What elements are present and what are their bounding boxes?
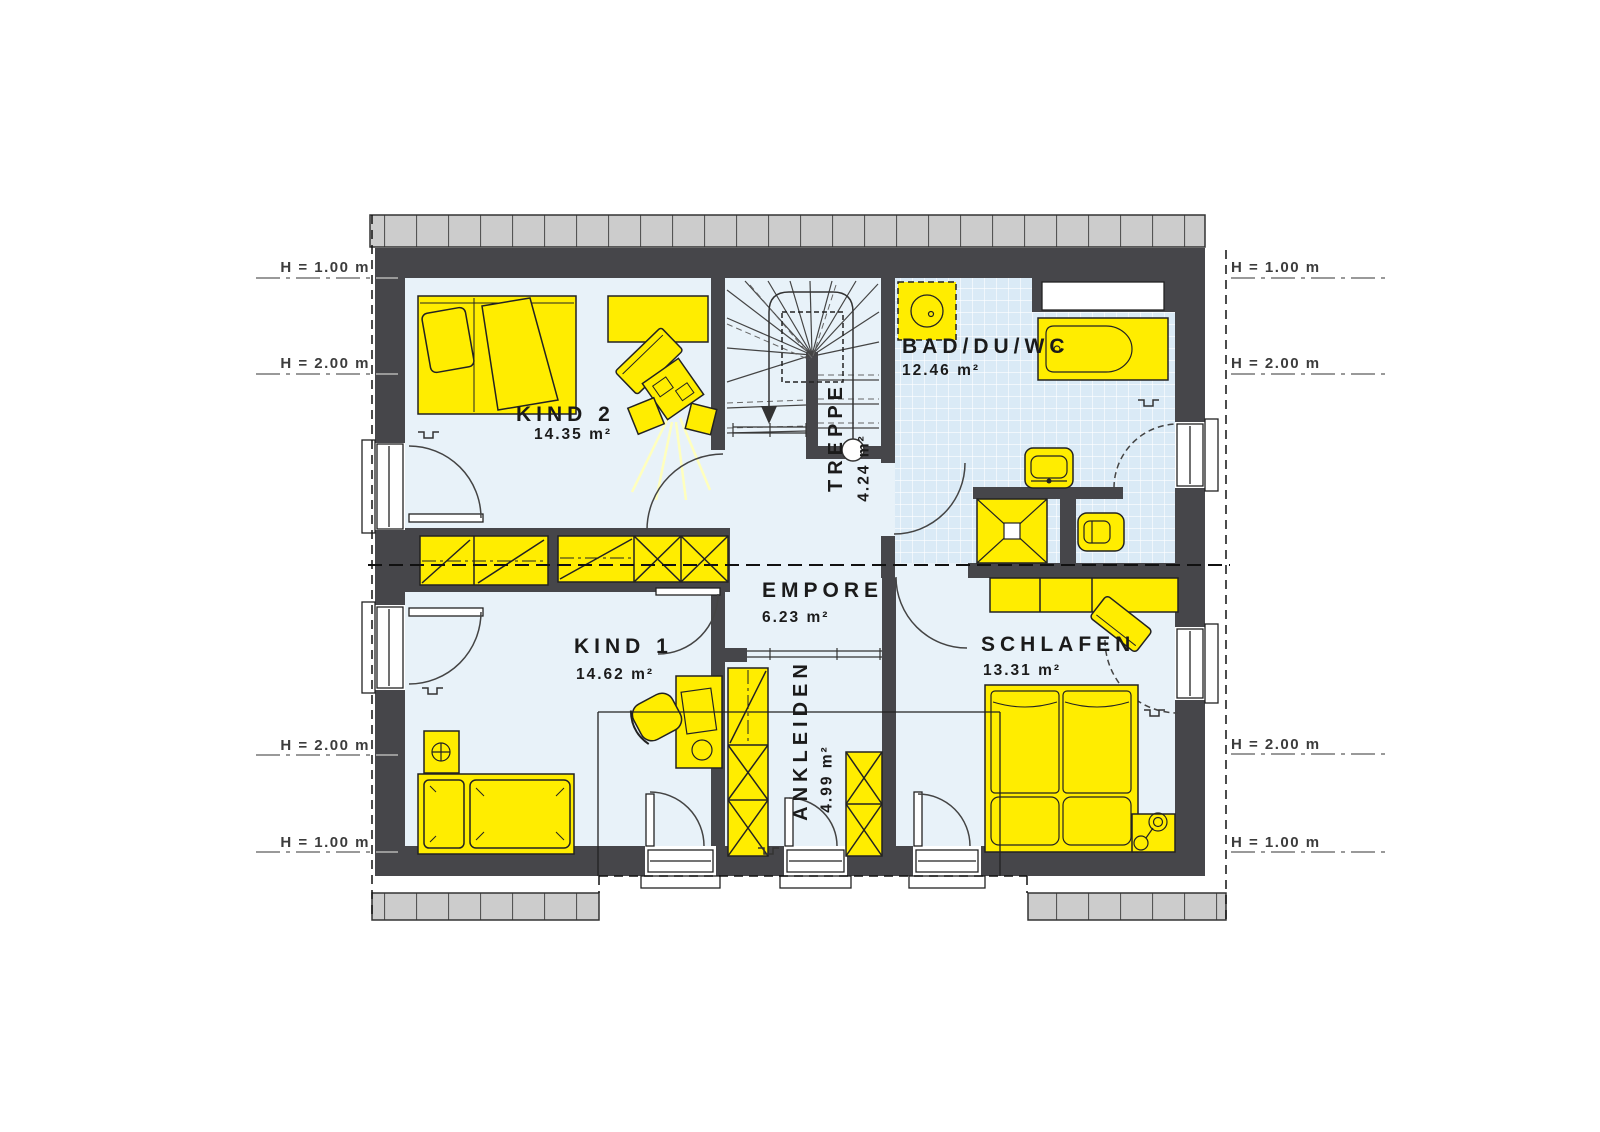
height-label-right-3: H = 2.00 m	[1231, 736, 1321, 753]
kind1-window-sill	[362, 602, 375, 693]
door-sill	[780, 876, 851, 888]
room-label-treppe: TREPPE	[826, 382, 846, 492]
kind2-closet	[420, 536, 548, 585]
room-area-treppe: 4.24 m²	[856, 434, 872, 501]
bad-top-window	[1042, 282, 1164, 310]
height-label-left-3: H = 2.00 m	[280, 737, 370, 754]
room-area-schlafen: 13.31 m²	[983, 663, 1061, 679]
schlafen-window-sill	[1205, 624, 1218, 703]
kind2-bed	[418, 296, 576, 414]
kind2-window	[377, 444, 403, 529]
kind1-window	[377, 607, 403, 688]
stair-newel-wall	[806, 352, 818, 448]
shower-partition	[1060, 499, 1076, 565]
room-area-kind1: 14.62 m²	[576, 667, 654, 683]
height-label-right-2: H = 2.00 m	[1231, 355, 1321, 372]
schlafen-corner-lamp	[1132, 813, 1175, 852]
toilet	[1078, 513, 1124, 551]
floor-plan-drawing	[0, 0, 1600, 1132]
room-label-ankleiden: ANKLEIDEN	[791, 659, 811, 821]
kind1-closet	[558, 536, 728, 582]
kind1-bed	[418, 774, 574, 854]
kind2-window-sill	[362, 440, 375, 533]
room-area-ankleiden: 4.99 m²	[819, 745, 835, 812]
room-label-bad: BAD/DU/WC	[902, 336, 1069, 357]
room-area-empore: 6.23 m²	[762, 610, 829, 626]
room-label-kind1: KIND 1	[574, 636, 673, 657]
kind1-nightstand	[424, 731, 459, 773]
room-label-schlafen: SCHLAFEN	[981, 634, 1135, 655]
schlafen-sideboard	[990, 578, 1178, 612]
room-label-empore: EMPORE	[762, 580, 883, 601]
room-area-bad: 12.46 m²	[902, 363, 980, 379]
room-label-kind2: KIND 2	[516, 404, 615, 425]
ankleiden-north-stub	[725, 648, 747, 662]
kind1-desk	[676, 676, 722, 768]
sink	[1025, 448, 1073, 488]
schlafen-double-bed	[985, 685, 1138, 852]
door-sill	[909, 876, 985, 888]
vanity-counter	[973, 487, 1123, 499]
floor-plan: KIND 2 14.35 m² KIND 1 14.62 m² EMPORE 6…	[0, 0, 1600, 1132]
ankleiden-closet-left	[728, 668, 768, 856]
washing-machine	[898, 282, 956, 340]
shower	[977, 499, 1047, 563]
height-label-left-1: H = 1.00 m	[280, 259, 370, 276]
bathroom-west-wall	[881, 278, 895, 463]
door-sill	[641, 876, 720, 888]
height-label-right-4: H = 1.00 m	[1231, 834, 1321, 851]
height-label-left-2: H = 2.00 m	[280, 355, 370, 372]
room-area-kind2: 14.35 m²	[534, 427, 612, 443]
ankleiden-closet-right	[846, 752, 882, 856]
height-label-left-4: H = 1.00 m	[280, 834, 370, 851]
height-label-right-1: H = 1.00 m	[1231, 259, 1321, 276]
bad-window-sill	[1205, 419, 1218, 491]
